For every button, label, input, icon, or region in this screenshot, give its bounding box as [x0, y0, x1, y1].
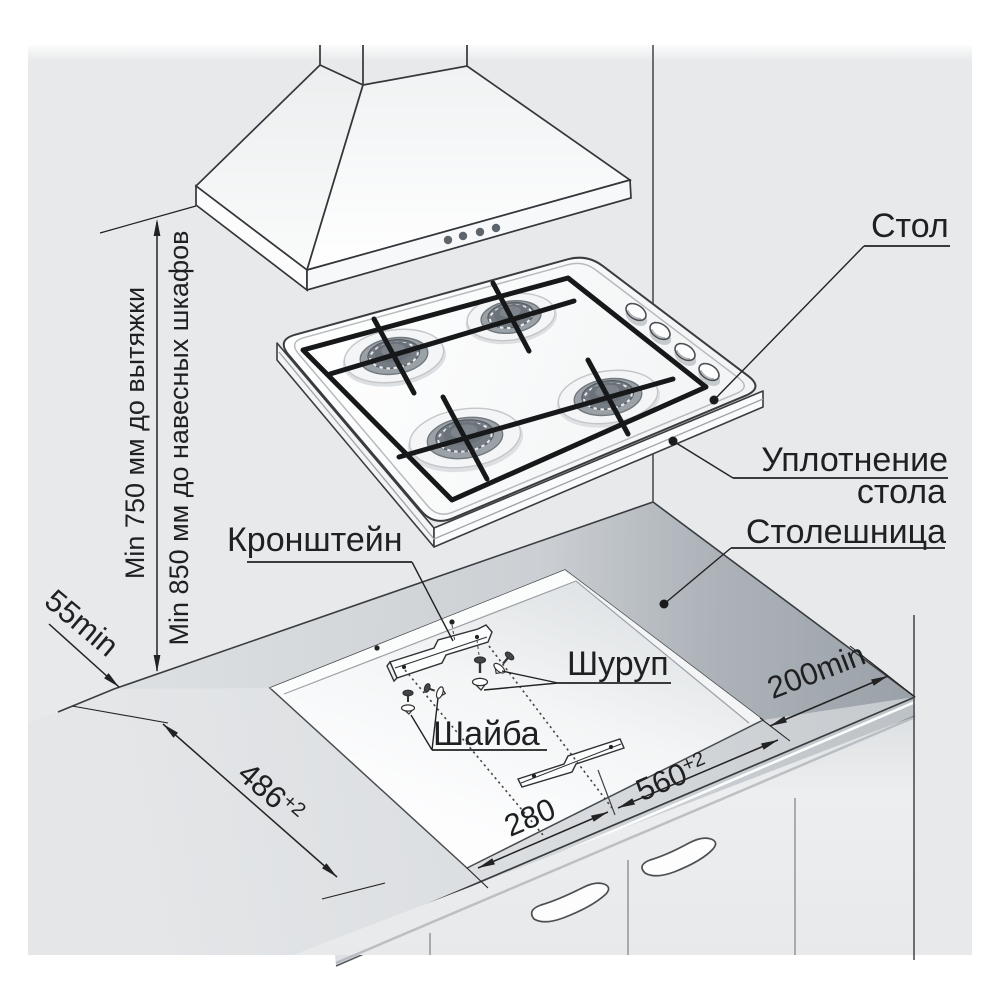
svg-text:Стол: Стол [871, 207, 949, 245]
svg-text:Столешница: Столешница [746, 513, 946, 551]
svg-text:Min 850 мм до навесных шкафов: Min 850 мм до навесных шкафов [164, 231, 194, 646]
svg-text:Min 750 мм до вытяжки: Min 750 мм до вытяжки [120, 287, 150, 579]
svg-text:Шайба: Шайба [433, 715, 540, 753]
svg-text:Шуруп: Шуруп [567, 645, 669, 683]
svg-text:Кронштейн: Кронштейн [227, 521, 403, 559]
